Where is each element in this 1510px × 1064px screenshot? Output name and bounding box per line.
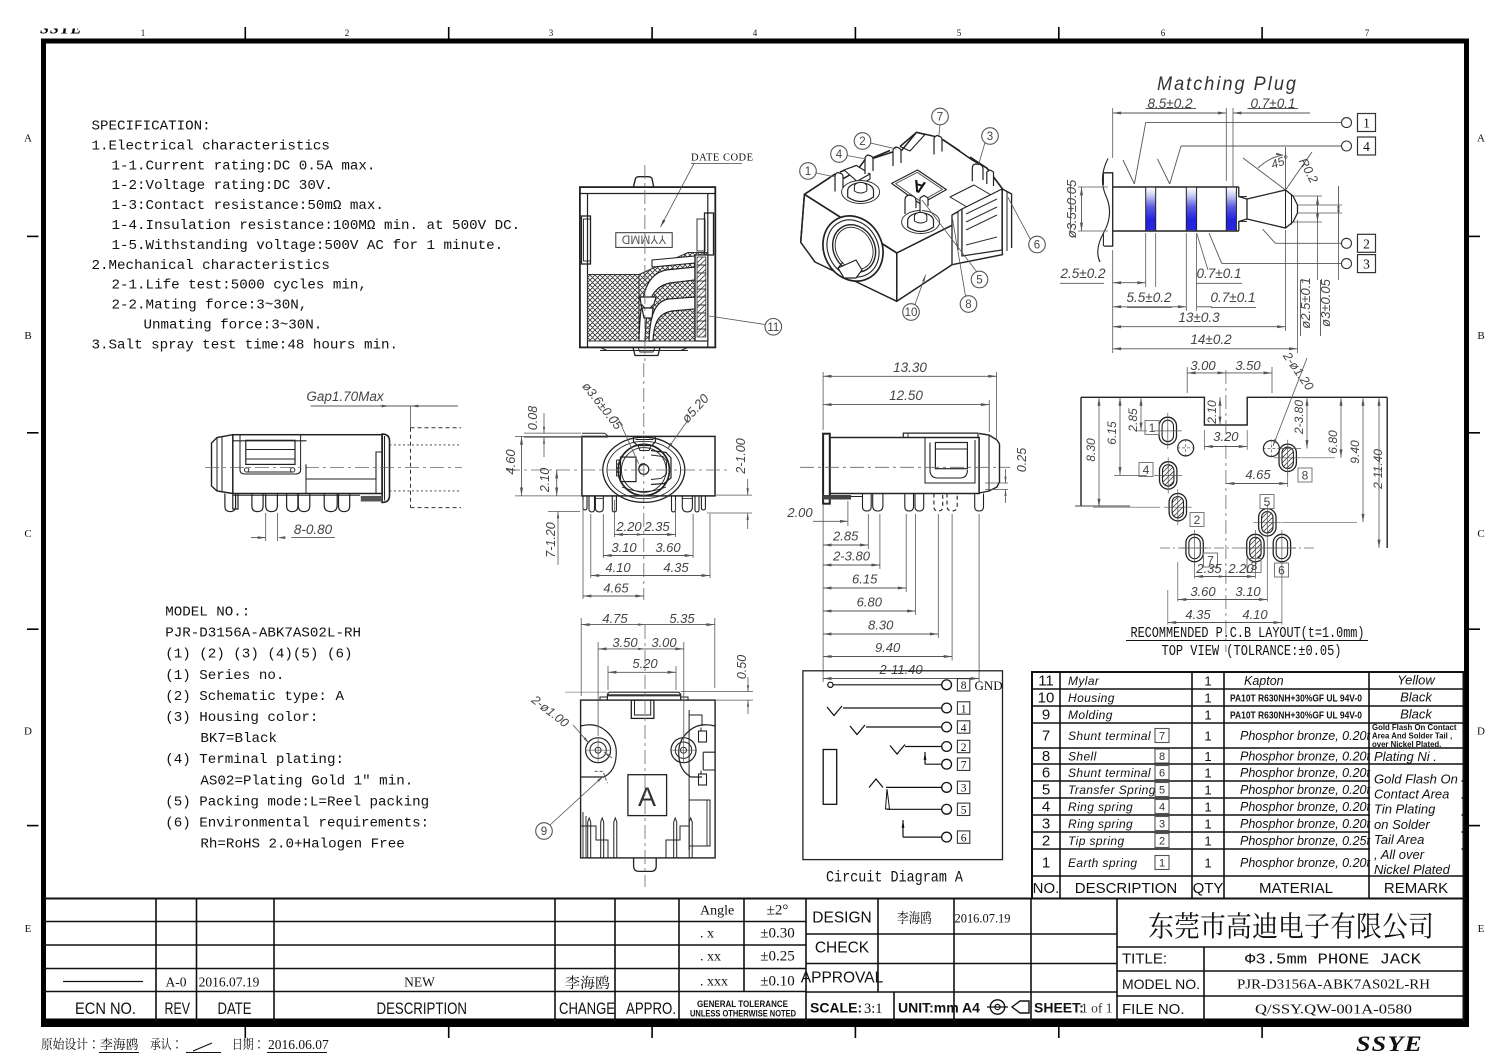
svg-text:2.35: 2.35 (1195, 561, 1222, 576)
svg-text:(6) Environmental requirements: (6) Environmental requirements: (165, 816, 429, 832)
svg-text:1.Electrical characteristics: 1.Electrical characteristics (92, 138, 330, 154)
svg-text:E: E (25, 923, 32, 935)
svg-text:4: 4 (1143, 463, 1150, 477)
svg-text:0.7±0.1: 0.7±0.1 (1211, 290, 1256, 305)
svg-text:0.50: 0.50 (735, 655, 749, 679)
svg-text:Nickel Plated: Nickel Plated (1374, 862, 1451, 877)
svg-text:2: 2 (859, 136, 865, 148)
svg-text:Angle: Angle (700, 904, 734, 919)
svg-text:Matching Plug: Matching Plug (1157, 73, 1298, 95)
svg-text:SPECIFICATION:: SPECIFICATION: (92, 119, 211, 135)
svg-text:Kapton: Kapton (1244, 674, 1284, 688)
svg-text:over Nickel Plated.: over Nickel Plated. (1372, 740, 1441, 749)
svg-text:NO.: NO. (1033, 880, 1060, 897)
svg-text:2-3.80: 2-3.80 (1292, 400, 1306, 435)
svg-text:1: 1 (1204, 783, 1211, 798)
svg-text:2.00: 2.00 (786, 505, 813, 520)
svg-text:PJR-D3156A-ABK7AS02L-RH: PJR-D3156A-ABK7AS02L-RH (165, 626, 361, 642)
svg-text:Transfer Spring: Transfer Spring (1068, 783, 1156, 797)
svg-text:. x: . x (700, 927, 714, 942)
svg-text:A-0: A-0 (166, 975, 187, 990)
svg-text:1: 1 (1042, 855, 1050, 872)
svg-text:11: 11 (767, 322, 779, 334)
svg-text:2.35: 2.35 (643, 519, 670, 534)
svg-text:DESCRIPTION: DESCRIPTION (377, 999, 468, 1018)
svg-text:SHEET:: SHEET: (1034, 1000, 1084, 1016)
svg-text:2-11.40: 2-11.40 (879, 662, 924, 677)
svg-text:. xxx: . xxx (700, 975, 728, 990)
svg-text:GND: GND (975, 678, 1003, 693)
svg-text:8: 8 (965, 299, 971, 311)
svg-text:Phosphor bronze, 0.25t: Phosphor bronze, 0.25t (1240, 834, 1370, 848)
svg-text:±0.25: ±0.25 (760, 949, 794, 965)
svg-text:8.30: 8.30 (868, 618, 894, 633)
svg-text:SCALE:: SCALE: (810, 1000, 862, 1016)
svg-text:2.85: 2.85 (1126, 408, 1140, 433)
svg-text:Shunt terminal: Shunt terminal (1068, 729, 1151, 743)
svg-text:B: B (1477, 330, 1484, 342)
svg-text:5: 5 (1264, 495, 1271, 509)
svg-text:8.30: 8.30 (1084, 438, 1098, 462)
svg-text:Earth spring: Earth spring (1068, 856, 1138, 870)
svg-text:Gap1.70Max: Gap1.70Max (306, 389, 385, 404)
svg-text:ECN NO.: ECN NO. (75, 999, 136, 1018)
svg-text:12.50: 12.50 (889, 388, 923, 403)
svg-text:2-1.00: 2-1.00 (734, 438, 748, 474)
svg-text:MATERIAL: MATERIAL (1259, 880, 1333, 897)
svg-text:3: 3 (1042, 816, 1050, 833)
svg-text:4: 4 (753, 28, 758, 38)
svg-text:PA10T R630NH+30%GF UL 94V-0: PA10T R630NH+30%GF UL 94V-0 (1230, 694, 1362, 705)
svg-text:Black: Black (1400, 707, 1433, 722)
svg-text:Contact Area: Contact Area (1374, 787, 1449, 802)
svg-text:3.00: 3.00 (651, 635, 677, 650)
svg-text:UNLESS OTHERWISE NOTED: UNLESS OTHERWISE NOTED (690, 1009, 796, 1020)
svg-text:3.20: 3.20 (1213, 429, 1239, 444)
svg-text:0.25: 0.25 (1015, 448, 1029, 472)
svg-text:8: 8 (1302, 469, 1309, 483)
svg-text:4: 4 (1042, 799, 1050, 816)
svg-text:1: 1 (1204, 708, 1211, 723)
svg-text:DATE CODE: DATE CODE (691, 153, 754, 164)
svg-text:3: 3 (549, 28, 554, 38)
svg-text:5.20: 5.20 (632, 656, 658, 671)
svg-text:UNIT:mm: UNIT:mm (898, 1000, 959, 1016)
svg-text:B: B (24, 330, 31, 342)
svg-text:6.80: 6.80 (857, 595, 883, 610)
svg-text:9.40: 9.40 (1348, 440, 1362, 464)
svg-text:3:1: 3:1 (864, 1001, 883, 1017)
svg-text:9.40: 9.40 (875, 640, 901, 655)
svg-text:1-5.Withstanding voltage:500V: 1-5.Withstanding voltage:500V AC for 1 m… (112, 238, 504, 254)
svg-text:REV: REV (165, 999, 191, 1018)
svg-text:2016.07.19: 2016.07.19 (199, 975, 260, 990)
svg-text:7: 7 (1042, 728, 1050, 745)
svg-text:, All over: , All over (1374, 847, 1425, 862)
svg-text:1-3:Contact resistance:50mΩ ma: 1-3:Contact resistance:50mΩ max. (112, 198, 384, 214)
svg-text:1-2:Voltage rating:DC 30V.: 1-2:Voltage rating:DC 30V. (112, 178, 333, 194)
svg-text:2: 2 (1194, 513, 1201, 527)
svg-text:1: 1 (1204, 749, 1211, 764)
svg-text:2.Mechanical characteristics: 2.Mechanical characteristics (92, 258, 330, 274)
svg-text:A: A (638, 782, 656, 812)
svg-text:3.60: 3.60 (655, 540, 681, 555)
svg-text:4.60: 4.60 (503, 449, 518, 475)
svg-text:RECOMMENDED P.C.B LAYOUT(t=1.0: RECOMMENDED P.C.B LAYOUT(t=1.0mm) (1131, 626, 1365, 642)
svg-text:Phosphor bronze, 0.20t: Phosphor bronze, 0.20t (1240, 750, 1370, 764)
svg-text:0.7±0.1: 0.7±0.1 (1197, 266, 1242, 281)
svg-text:2: 2 (1363, 236, 1370, 251)
svg-text:CHANGE: CHANGE (559, 999, 615, 1018)
svg-text:±0.10: ±0.10 (760, 974, 794, 990)
svg-text:4: 4 (961, 722, 967, 734)
svg-text:D: D (1477, 725, 1485, 737)
svg-text:(3) Housing color:: (3) Housing color: (165, 710, 318, 726)
svg-text:7: 7 (937, 112, 943, 124)
svg-text:Shell: Shell (1068, 750, 1097, 764)
svg-text:2: 2 (345, 28, 350, 38)
svg-text:1 of 1: 1 of 1 (1081, 1001, 1113, 1016)
svg-text:3: 3 (961, 783, 967, 795)
svg-text:6.15: 6.15 (1105, 421, 1119, 445)
svg-text:C: C (1477, 528, 1484, 540)
svg-text:5.35: 5.35 (669, 611, 695, 626)
svg-text:3.Salt spray test time:48 hour: 3.Salt spray test time:48 hours min. (92, 337, 399, 353)
svg-text:4: 4 (836, 149, 843, 161)
svg-text:Phosphor bronze, 0.20t: Phosphor bronze, 0.20t (1240, 766, 1370, 780)
svg-text:2.20: 2.20 (1227, 561, 1254, 576)
svg-text:AS02=Plating Gold 1″ min.: AS02=Plating Gold 1″ min. (200, 773, 413, 789)
svg-text:Phosphor bronze, 0.20t: Phosphor bronze, 0.20t (1240, 817, 1370, 831)
svg-text:6: 6 (1034, 240, 1040, 252)
svg-text:Circuit Diagram A: Circuit Diagram A (826, 869, 964, 887)
svg-text:4.10: 4.10 (605, 560, 631, 575)
svg-text:3: 3 (1159, 819, 1165, 831)
svg-text:1: 1 (1149, 421, 1156, 435)
svg-text:Phosphor bronze, 0.20t: Phosphor bronze, 0.20t (1240, 729, 1370, 743)
svg-text:DESCRIPTION: DESCRIPTION (1075, 880, 1178, 897)
svg-text:7: 7 (1159, 731, 1165, 743)
svg-text:4.35: 4.35 (1185, 607, 1211, 622)
svg-text:13±0.3: 13±0.3 (1178, 310, 1220, 325)
svg-text:2-11.40: 2-11.40 (1371, 449, 1385, 490)
svg-text:9: 9 (1042, 707, 1050, 724)
svg-text:1: 1 (1204, 766, 1211, 781)
svg-text:1: 1 (1204, 691, 1211, 706)
svg-text:Housing: Housing (1068, 691, 1115, 705)
svg-text:4.65: 4.65 (1245, 467, 1271, 482)
svg-text:1: 1 (1204, 856, 1211, 871)
svg-text:4.10: 4.10 (1242, 607, 1268, 622)
svg-text:Phosphor bronze, 0.20t: Phosphor bronze, 0.20t (1240, 800, 1370, 814)
svg-text:Mylar: Mylar (1068, 674, 1100, 688)
svg-text:(1) Series no.: (1) Series no. (165, 668, 284, 684)
svg-text:13.30: 13.30 (893, 360, 927, 375)
svg-text:(4) Terminal plating:: (4) Terminal plating: (165, 752, 344, 768)
svg-text:Phosphor bronze, 0.20t: Phosphor bronze, 0.20t (1240, 783, 1370, 797)
svg-text:2016.07.19: 2016.07.19 (955, 912, 1011, 926)
svg-text:1-4.Insulation resistance:100M: 1-4.Insulation resistance:100MΩ min. at … (112, 218, 521, 234)
svg-text:4.65: 4.65 (603, 581, 629, 596)
svg-text:3: 3 (1363, 257, 1370, 272)
svg-text:TOP VIEW (TOLRANCE:±0.05): TOP VIEW (TOLRANCE:±0.05) (1162, 644, 1342, 660)
svg-text:8: 8 (1159, 751, 1165, 763)
svg-text:14±0.2: 14±0.2 (1190, 332, 1232, 347)
svg-text:Molding: Molding (1068, 708, 1113, 722)
svg-text:1: 1 (1204, 817, 1211, 832)
svg-text:Tip spring: Tip spring (1068, 834, 1125, 848)
svg-text:DESIGN: DESIGN (812, 910, 871, 927)
svg-text:E: E (1478, 923, 1485, 935)
svg-text:BK7=Black: BK7=Black (200, 731, 277, 747)
svg-text:MODEL NO.:: MODEL NO.: (165, 605, 250, 621)
svg-text:6: 6 (1161, 28, 1166, 38)
svg-text:CHECK: CHECK (815, 940, 870, 957)
svg-text:1: 1 (1204, 674, 1211, 689)
svg-text:APPRO.: APPRO. (626, 999, 676, 1018)
svg-text:APPROVAL: APPROVAL (801, 970, 884, 987)
svg-text:2016.06.07: 2016.06.07 (268, 1037, 329, 1052)
svg-text:. xx: . xx (700, 950, 721, 965)
svg-text:Ring spring: Ring spring (1068, 817, 1133, 831)
svg-text:(5) Packing mode:L=Reel packin: (5) Packing mode:L=Reel packing (165, 794, 429, 810)
svg-text:1: 1 (141, 28, 146, 38)
svg-text:10: 10 (1038, 690, 1055, 707)
svg-text:4.35: 4.35 (663, 560, 689, 575)
svg-text:2: 2 (1159, 836, 1165, 848)
svg-text:1: 1 (1363, 116, 1370, 131)
svg-text:2-2.Mating force:3~30N,: 2-2.Mating force:3~30N, (112, 298, 308, 314)
svg-text:A4: A4 (962, 1000, 980, 1016)
svg-text:D: D (24, 725, 32, 737)
svg-text:Black: Black (1400, 690, 1433, 705)
svg-text:7: 7 (1365, 28, 1370, 38)
svg-text:Tin Plating: Tin Plating (1374, 802, 1436, 817)
svg-text:8: 8 (961, 680, 967, 692)
svg-text:2-3.80: 2-3.80 (832, 549, 871, 564)
svg-text:SSYE: SSYE (1356, 1031, 1423, 1056)
svg-text:TITLE:: TITLE: (1122, 951, 1167, 968)
svg-text:6: 6 (1042, 765, 1050, 782)
svg-text:ø3.5±0.05: ø3.5±0.05 (1064, 179, 1079, 238)
svg-text:5: 5 (1159, 785, 1165, 797)
svg-text:Rh=RoHS 2.0+Halogen Free: Rh=RoHS 2.0+Halogen Free (200, 837, 404, 853)
svg-text:5: 5 (961, 805, 967, 817)
svg-text:3: 3 (987, 131, 993, 143)
svg-text:5: 5 (976, 275, 982, 287)
svg-text:3.50: 3.50 (1235, 358, 1261, 373)
svg-text:FILE NO.: FILE NO. (1122, 1001, 1185, 1018)
svg-text:Q/SSY.QW-001A-0580: Q/SSY.QW-001A-0580 (1255, 1003, 1412, 1018)
svg-text:2.85: 2.85 (832, 529, 859, 544)
svg-text:7: 7 (961, 760, 967, 772)
svg-text:MODEL NO.: MODEL NO. (1122, 976, 1200, 992)
svg-text:(2) Schematic type: A: (2) Schematic type: A (165, 689, 344, 705)
svg-text:PA10T R630NH+30%GF UL 94V-0: PA10T R630NH+30%GF UL 94V-0 (1230, 711, 1362, 722)
svg-text:2: 2 (1042, 833, 1050, 850)
svg-text:Φ3.5mm PHONE JACK: Φ3.5mm PHONE JACK (1245, 953, 1421, 969)
svg-text:2: 2 (961, 742, 967, 754)
svg-text:Gold Flash On: Gold Flash On (1374, 772, 1458, 787)
svg-text:4: 4 (1363, 139, 1370, 154)
svg-text:3.10: 3.10 (1235, 584, 1261, 599)
svg-text:A: A (1477, 132, 1485, 144)
svg-text:Plating Ni .: Plating Ni . (1374, 749, 1437, 764)
svg-text:QTY: QTY (1193, 880, 1224, 897)
svg-text:Unmating force:3~30N.: Unmating force:3~30N. (144, 318, 323, 334)
svg-text:11: 11 (1038, 673, 1054, 690)
svg-text:A: A (24, 132, 32, 144)
svg-text:Tail Area: Tail Area (1374, 832, 1424, 847)
svg-text:9: 9 (541, 826, 547, 838)
svg-text:±2°: ±2° (767, 903, 789, 919)
svg-text:3.60: 3.60 (1190, 584, 1216, 599)
svg-text:C: C (24, 528, 31, 540)
svg-text:Phosphor bronze, 0.20t: Phosphor bronze, 0.20t (1240, 856, 1370, 870)
svg-text:2.20: 2.20 (615, 519, 642, 534)
svg-text:1: 1 (1159, 858, 1165, 870)
svg-text:1: 1 (1204, 729, 1211, 744)
svg-text:5: 5 (957, 28, 962, 38)
svg-text:Ring spring: Ring spring (1068, 800, 1133, 814)
svg-text:6.15: 6.15 (852, 572, 878, 587)
svg-text:8-0.80: 8-0.80 (294, 522, 333, 537)
svg-text:8: 8 (1042, 748, 1050, 765)
svg-text:4: 4 (1159, 802, 1165, 814)
svg-text:2.10: 2.10 (1205, 400, 1219, 425)
svg-text:1: 1 (961, 703, 967, 715)
svg-text:4.75: 4.75 (602, 611, 628, 626)
svg-text:3.50: 3.50 (612, 635, 638, 650)
svg-text:6: 6 (1159, 768, 1165, 780)
svg-text:6: 6 (961, 832, 967, 844)
svg-text:10: 10 (905, 307, 918, 319)
svg-text:on Solder: on Solder (1374, 817, 1430, 832)
svg-text:Yellow: Yellow (1397, 673, 1436, 688)
svg-text:NEW: NEW (404, 975, 435, 990)
svg-text:±0.30: ±0.30 (760, 926, 794, 942)
svg-text:7-1.20: 7-1.20 (544, 522, 558, 557)
svg-text:6.80: 6.80 (1326, 430, 1340, 454)
svg-text:2-1.Life test:5000 cycles min,: 2-1.Life test:5000 cycles min, (112, 278, 367, 294)
svg-text:Shunt terminal: Shunt terminal (1068, 766, 1151, 780)
svg-text:5.5±0.2: 5.5±0.2 (1127, 290, 1172, 305)
svg-text:PJR-D3156A-ABK7AS02L-RH: PJR-D3156A-ABK7AS02L-RH (1237, 978, 1430, 993)
svg-text:0.08: 0.08 (526, 406, 540, 430)
svg-text:1-1.Current rating:DC 0.5A max: 1-1.Current rating:DC 0.5A max. (112, 158, 376, 174)
svg-text:1: 1 (1204, 800, 1211, 815)
svg-text:1: 1 (1204, 834, 1211, 849)
svg-text:2.10: 2.10 (538, 468, 552, 493)
svg-text:1: 1 (805, 166, 811, 178)
svg-text:YYMMD: YYMMD (621, 233, 666, 247)
svg-text:DATE: DATE (218, 999, 252, 1018)
svg-text:3.10: 3.10 (611, 540, 637, 555)
svg-text:REMARK: REMARK (1384, 880, 1448, 897)
svg-text:5: 5 (1042, 782, 1050, 799)
svg-text:3.00: 3.00 (1190, 358, 1216, 373)
svg-text:2.5±0.2: 2.5±0.2 (1060, 266, 1106, 281)
svg-text:(1) (2) (3) (4)(5) (6): (1) (2) (3) (4)(5) (6) (165, 647, 352, 663)
